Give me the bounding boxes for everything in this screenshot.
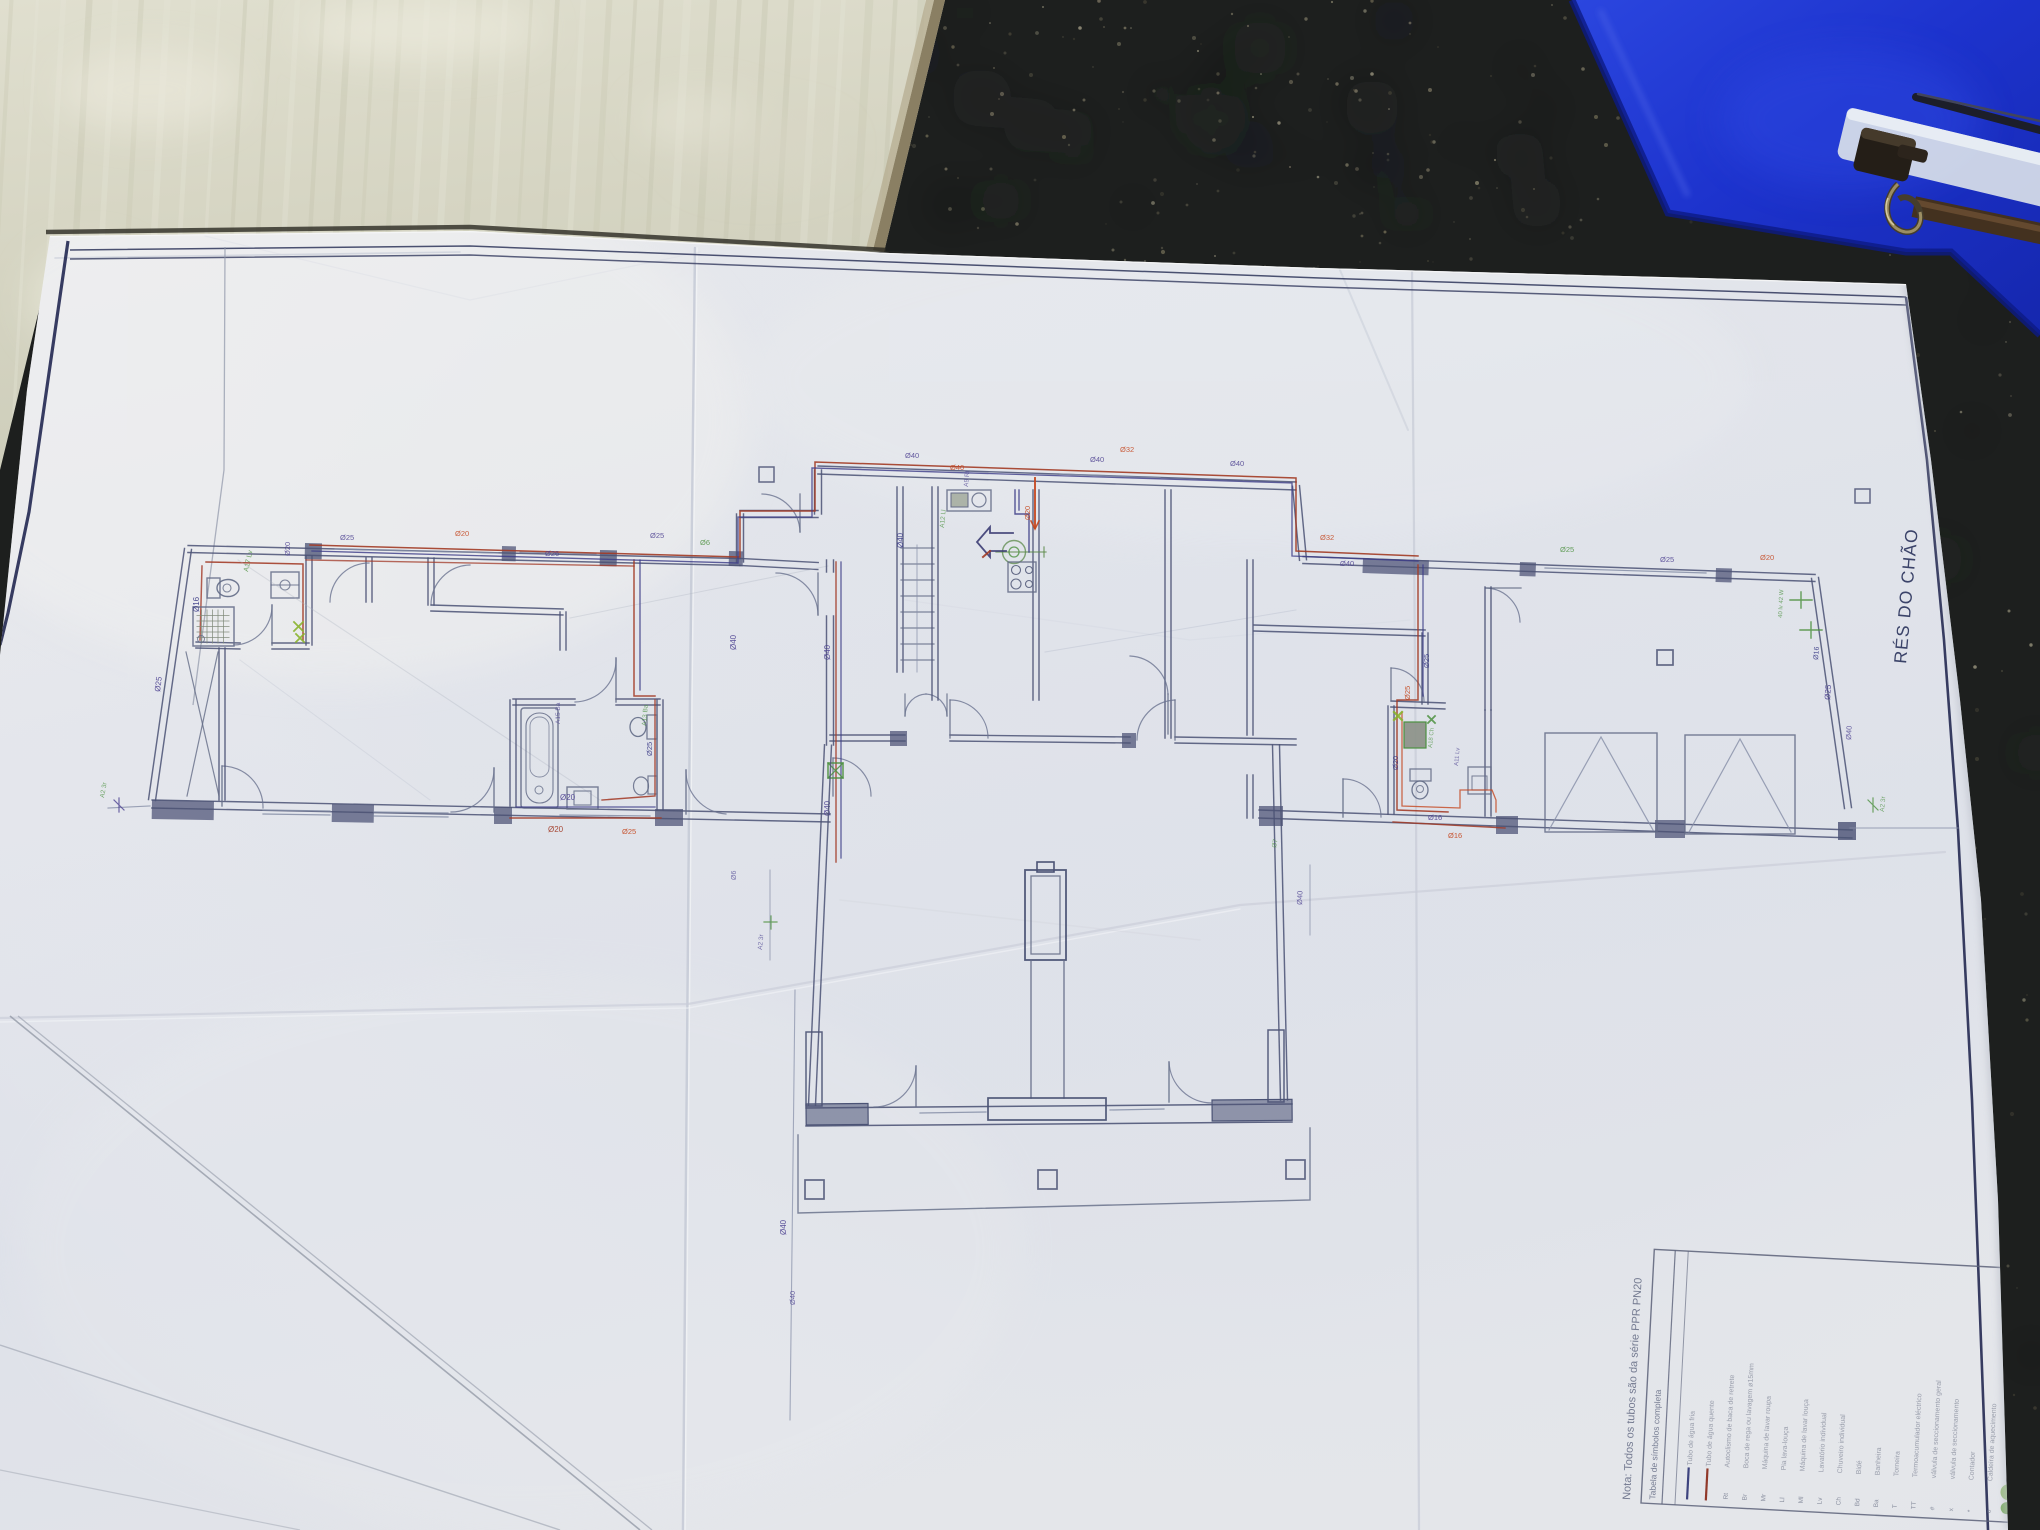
svg-text:Ø40: Ø40 bbox=[905, 451, 919, 460]
svg-text:Ba: Ba bbox=[1873, 1499, 1880, 1508]
svg-text:Ø25: Ø25 bbox=[1403, 686, 1412, 700]
svg-text:Bidé: Bidé bbox=[1856, 1460, 1864, 1474]
svg-text:Rt: Rt bbox=[1723, 1493, 1730, 1500]
svg-text:Ø20: Ø20 bbox=[455, 529, 469, 538]
svg-text:Ø25: Ø25 bbox=[622, 827, 636, 836]
svg-text:Bd: Bd bbox=[1854, 1498, 1861, 1507]
svg-text:Banheira: Banheira bbox=[1875, 1447, 1883, 1475]
svg-text:A15 Ba: A15 Ba bbox=[555, 702, 562, 724]
svg-text:Ø40: Ø40 bbox=[896, 532, 905, 548]
svg-text:Ø6: Ø6 bbox=[700, 538, 710, 547]
svg-text:Ø40: Ø40 bbox=[779, 1219, 788, 1235]
svg-text:A2 3r: A2 3r bbox=[1879, 795, 1887, 812]
svg-text:Ø40: Ø40 bbox=[823, 800, 832, 816]
svg-text:Ø20: Ø20 bbox=[1023, 506, 1032, 520]
svg-text:Ø20: Ø20 bbox=[548, 825, 564, 834]
svg-text:Ø40: Ø40 bbox=[1090, 455, 1104, 464]
svg-text:Ø16: Ø16 bbox=[1428, 813, 1442, 822]
svg-text:Ø25: Ø25 bbox=[1422, 654, 1431, 668]
svg-text:Ml: Ml bbox=[1798, 1496, 1805, 1504]
svg-text:Ø16: Ø16 bbox=[192, 596, 201, 612]
svg-text:Ø25: Ø25 bbox=[340, 533, 354, 542]
svg-text:Ll: Ll bbox=[1779, 1497, 1786, 1503]
svg-text:T: T bbox=[1892, 1504, 1899, 1508]
svg-text:Ø20: Ø20 bbox=[1391, 756, 1400, 770]
svg-text:Ø25: Ø25 bbox=[1560, 545, 1574, 554]
svg-text:Ø40: Ø40 bbox=[950, 463, 964, 472]
svg-text:Ø16: Ø16 bbox=[1448, 831, 1462, 840]
svg-text:Ø40: Ø40 bbox=[1230, 459, 1244, 468]
svg-text:Ø6: Ø6 bbox=[731, 871, 738, 880]
svg-text:Ø40: Ø40 bbox=[1844, 725, 1854, 740]
svg-text:Ø32: Ø32 bbox=[1120, 445, 1134, 454]
svg-text:Ø25: Ø25 bbox=[1823, 684, 1833, 700]
svg-text:Ø40: Ø40 bbox=[1340, 559, 1354, 568]
svg-text:Ø32: Ø32 bbox=[1320, 533, 1334, 542]
svg-text:Ø40: Ø40 bbox=[1295, 891, 1304, 905]
svg-text:Ø25: Ø25 bbox=[645, 742, 654, 756]
svg-text:Ø16: Ø16 bbox=[1813, 646, 1821, 660]
svg-text:TT: TT bbox=[1910, 1501, 1917, 1509]
svg-text:Ø40: Ø40 bbox=[823, 644, 832, 660]
svg-text:Ø40: Ø40 bbox=[729, 634, 738, 650]
svg-text:Ø25: Ø25 bbox=[153, 676, 164, 693]
svg-text:Ø26: Ø26 bbox=[545, 549, 559, 558]
svg-text:Ø20: Ø20 bbox=[283, 542, 292, 556]
svg-text:Ø20: Ø20 bbox=[560, 793, 576, 802]
svg-text:Ø25: Ø25 bbox=[1660, 555, 1674, 564]
svg-text:Ø25: Ø25 bbox=[650, 531, 664, 540]
svg-text:Ø40: Ø40 bbox=[788, 1291, 797, 1305]
svg-text:Lv: Lv bbox=[1817, 1497, 1824, 1505]
svg-text:Ch: Ch bbox=[1835, 1496, 1842, 1505]
svg-text:Br: Br bbox=[1741, 1493, 1748, 1501]
svg-text:Mr: Mr bbox=[1760, 1493, 1767, 1502]
svg-text:Torneira: Torneira bbox=[1893, 1451, 1901, 1477]
svg-text:Ø20: Ø20 bbox=[1760, 553, 1774, 562]
svg-text:A2 3r: A2 3r bbox=[757, 933, 765, 950]
